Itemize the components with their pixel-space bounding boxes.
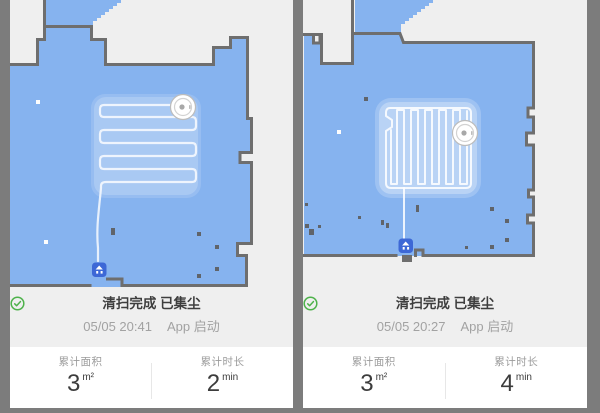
- stat-label: 累计面积: [352, 356, 396, 369]
- status-time: 05/05 20:41: [83, 319, 152, 334]
- dock-icon: [92, 263, 107, 278]
- stat-value: 3: [67, 371, 80, 396]
- check-circle-icon: [303, 296, 318, 311]
- stats-bar-2: 累计面积 3 m² 累计时长 4 min: [303, 347, 587, 408]
- stat-unit: min: [516, 372, 532, 384]
- cleaning-record-panel-1: 清扫完成 已集尘 05/05 20:41App 启动 累计面积 3 m² 累计时…: [10, 0, 293, 408]
- robot-icon: [171, 95, 196, 120]
- check-circle-icon: [10, 296, 25, 311]
- room-alcove: [45, 0, 125, 28]
- status-trigger: App 启动: [167, 319, 220, 334]
- dock-icon: [399, 239, 414, 254]
- cleaning-record-panel-2: 清扫完成 已集尘 05/05 20:27App 启动 累计面积 3 m² 累计时…: [303, 0, 587, 408]
- status-trigger: App 启动: [460, 319, 513, 334]
- stat-value: 3: [360, 371, 373, 396]
- stat-unit: m²: [376, 372, 388, 384]
- status-title: 清扫完成 已集尘: [102, 296, 200, 312]
- status-title: 清扫完成 已集尘: [396, 296, 494, 312]
- cleaning-status-2: 清扫完成 已集尘 05/05 20:27App 启动: [303, 296, 587, 334]
- status-meta: 05/05 20:41App 启动: [10, 319, 293, 334]
- vacuum-map-2[interactable]: [303, 0, 587, 347]
- dock-wall-nub: [402, 255, 412, 262]
- stat-label: 累计面积: [59, 356, 103, 369]
- status-time: 05/05 20:27: [377, 319, 446, 334]
- map-dots: [337, 130, 341, 134]
- stats-bar-1: 累计面积 3 m² 累计时长 2 min: [10, 347, 293, 408]
- stat-label: 累计时长: [494, 356, 538, 369]
- stat-total-area: 累计面积 3 m²: [303, 347, 445, 408]
- stat-unit: min: [222, 372, 238, 384]
- stat-total-area: 累计面积 3 m²: [10, 347, 151, 408]
- map-view-2[interactable]: 清扫完成 已集尘 05/05 20:27App 启动: [303, 0, 587, 347]
- status-meta: 05/05 20:27App 启动: [303, 319, 587, 334]
- robot-icon: [453, 121, 478, 146]
- stat-value: 2: [207, 371, 220, 396]
- vacuum-map-1[interactable]: [10, 0, 293, 347]
- cleaning-status-1: 清扫完成 已集尘 05/05 20:41App 启动: [10, 296, 293, 334]
- stat-label: 累计时长: [201, 356, 245, 369]
- cleaned-area-core: [379, 102, 477, 194]
- stat-value: 4: [501, 371, 514, 396]
- stat-unit: m²: [82, 372, 94, 384]
- robot-vacuum-map-comparison: { "colors": { "frame": "#7c7c7c", "panel…: [0, 0, 600, 413]
- stat-total-time: 累计时长 4 min: [446, 347, 588, 408]
- stat-total-time: 累计时长 2 min: [152, 347, 293, 408]
- room-alcove: [355, 0, 437, 34]
- map-view-1[interactable]: 清扫完成 已集尘 05/05 20:41App 启动: [10, 0, 293, 347]
